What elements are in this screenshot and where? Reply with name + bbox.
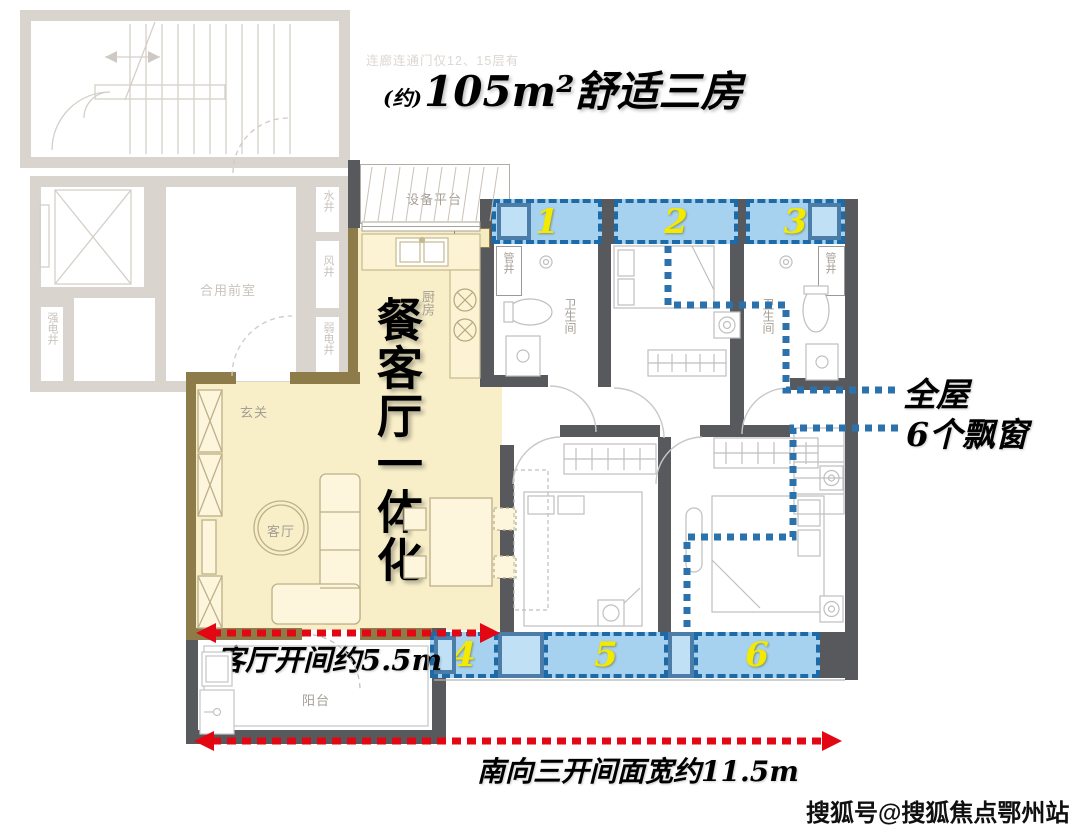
living-width-arrow bbox=[196, 623, 500, 643]
south-width-arrow bbox=[194, 731, 842, 751]
floorplan-canvas: 连廊连通门仅12、15层有 合用前室 强电井 水井 风井 弱电井 1 2 bbox=[0, 0, 1080, 833]
annotation-overlay-layer bbox=[0, 0, 1080, 833]
bay-window-connector-line bbox=[668, 246, 898, 628]
watermark: 搜狐号@搜狐焦点鄂州站 bbox=[806, 793, 1069, 828]
